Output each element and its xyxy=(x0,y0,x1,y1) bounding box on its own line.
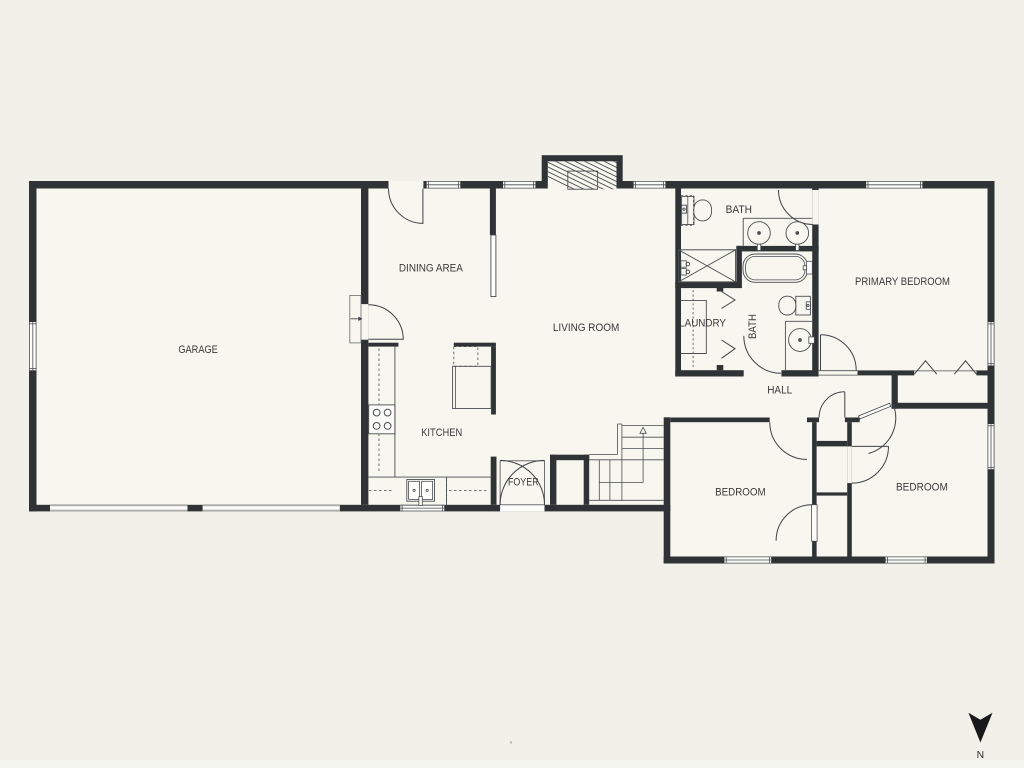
svg-text:BATH: BATH xyxy=(726,204,752,216)
svg-text:BATH: BATH xyxy=(747,314,759,339)
svg-text:KITCHEN: KITCHEN xyxy=(421,427,462,439)
svg-text:DINING AREA: DINING AREA xyxy=(399,262,464,274)
svg-text:LAUNDRY: LAUNDRY xyxy=(679,317,726,329)
svg-text:LIVING ROOM: LIVING ROOM xyxy=(553,322,619,334)
svg-text:PRIMARY BEDROOM: PRIMARY BEDROOM xyxy=(855,276,950,288)
svg-text:BEDROOM: BEDROOM xyxy=(896,481,948,493)
svg-text:BEDROOM: BEDROOM xyxy=(715,487,766,499)
svg-text:HALL: HALL xyxy=(767,385,792,397)
svg-text:N: N xyxy=(977,750,985,761)
svg-text:FOYER: FOYER xyxy=(508,477,539,489)
svg-text:GARAGE: GARAGE xyxy=(178,344,218,356)
